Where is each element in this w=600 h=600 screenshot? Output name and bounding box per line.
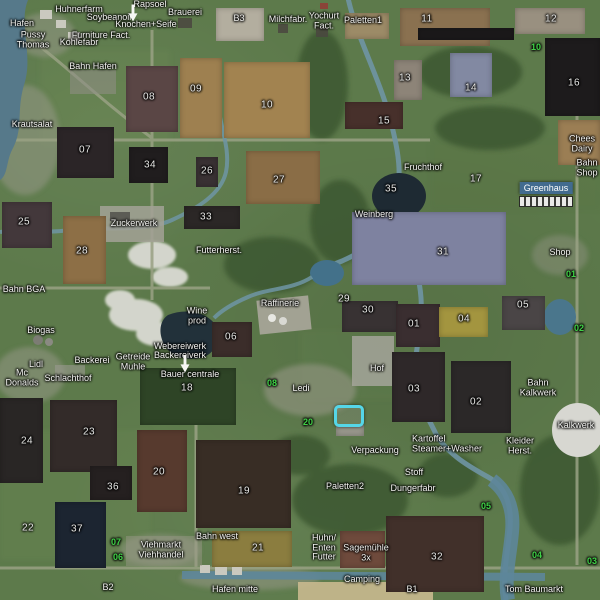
player-arrow-icon bbox=[129, 5, 138, 22]
field-number-24: 24 bbox=[21, 437, 33, 448]
place-label-shop: Shop bbox=[549, 248, 570, 258]
owned-field-number-02: 02 bbox=[574, 324, 584, 334]
field-number-34: 34 bbox=[144, 161, 156, 172]
place-label-kohlefabr: Kohlefabr bbox=[60, 38, 99, 48]
owned-field-number-01: 01 bbox=[566, 270, 576, 280]
field-number-33: 33 bbox=[200, 213, 212, 224]
field-number-20: 20 bbox=[153, 468, 165, 479]
field-number-31: 31 bbox=[437, 248, 449, 259]
place-label-furniture-fact: Furniture Fact. bbox=[72, 31, 131, 41]
place-label-raffinerie: Raffinerie bbox=[261, 299, 299, 309]
field-number-06: 06 bbox=[225, 333, 237, 344]
owned-field-number-04: 04 bbox=[532, 551, 542, 561]
place-label-tom-baumarkt: Tom Baumarkt bbox=[505, 585, 563, 595]
owned-field-number-05: 05 bbox=[481, 502, 491, 512]
place-label-zuckerwerk: Zuckerwerk bbox=[111, 219, 158, 229]
place-label-hof: Hof bbox=[370, 364, 384, 374]
place-label-hafen: Hafen bbox=[10, 19, 34, 29]
field-number-09: 09 bbox=[190, 85, 202, 96]
place-label-soybeanoil: Soybeanoil bbox=[87, 13, 132, 23]
place-label-mc-donalds: Mc Donalds bbox=[5, 368, 38, 387]
place-label-fruchthof: Fruchthof bbox=[404, 163, 442, 173]
place-label-bahn-shop: Bahn Shop bbox=[576, 158, 597, 177]
field-number-15: 15 bbox=[378, 117, 390, 128]
place-label-kleider-herst: Kleider Herst. bbox=[506, 436, 534, 455]
greenhaus-station-label[interactable]: Greenhaus bbox=[520, 182, 573, 194]
place-label-knochen-seife: Knochen+Seife bbox=[115, 20, 176, 30]
field-number-01: 01 bbox=[408, 320, 420, 331]
player-arrow-icon bbox=[181, 356, 190, 373]
place-label-biogas: Biogas bbox=[27, 326, 55, 336]
owned-field-number-03: 03 bbox=[587, 557, 597, 567]
field-number-12: 12 bbox=[545, 15, 557, 26]
place-label-yochurt-fact: Yochurt Fact. bbox=[309, 11, 339, 30]
place-label-wine-prod: Wine prod bbox=[187, 306, 208, 325]
field-number-16: 16 bbox=[568, 79, 580, 90]
selection-target-icon bbox=[334, 405, 364, 427]
owned-field-number-07: 07 bbox=[111, 538, 121, 548]
field-number-18: 18 bbox=[181, 384, 193, 395]
field-number-37: 37 bbox=[71, 525, 83, 536]
field-number-05: 05 bbox=[517, 301, 529, 312]
owned-field-number-08: 08 bbox=[267, 379, 277, 389]
place-label-milchfabr: Milchfabr. bbox=[269, 15, 308, 25]
place-label-hafen-mitte: Hafen mitte bbox=[212, 585, 258, 595]
place-label-b2: B2 bbox=[102, 583, 113, 593]
place-label-weinberg: Weinberg bbox=[355, 210, 393, 220]
owned-field-number-10: 10 bbox=[531, 43, 541, 53]
place-label-bahn-bga: Bahn BGA bbox=[3, 285, 46, 295]
place-label-paletten1: Paletten1 bbox=[344, 16, 382, 26]
place-label-backereiverk: Backereiverk bbox=[154, 351, 206, 361]
place-label-bahn-west: Bahn west bbox=[196, 532, 238, 542]
place-label-viehmarkt-viehhandel: Viehmarkt Viehhandel bbox=[139, 540, 184, 559]
place-label-kalkwerk: Kalkwerk bbox=[558, 421, 595, 431]
place-label-kartoffel-steamer-washer: Kartoffel Steamer+Washer bbox=[412, 434, 482, 453]
field-number-23: 23 bbox=[83, 428, 95, 439]
field-number-10: 10 bbox=[261, 101, 273, 112]
field-number-21: 21 bbox=[252, 544, 264, 555]
place-label-lidl: Lidl bbox=[29, 360, 43, 370]
field-number-27: 27 bbox=[273, 176, 285, 187]
field-number-22: 22 bbox=[22, 524, 34, 535]
place-label-bahn-hafen: Bahn Hafen bbox=[69, 62, 117, 72]
field-number-08: 08 bbox=[143, 93, 155, 104]
place-label-huhnerfarm: Huhnerfarm bbox=[55, 5, 103, 15]
field-number-32: 32 bbox=[431, 553, 443, 564]
field-number-13: 13 bbox=[399, 74, 411, 85]
place-label-chees-dairy: Chees Dairy bbox=[569, 134, 595, 153]
place-label-bahn-kalkwerk: Bahn Kalkwerk bbox=[520, 378, 557, 397]
place-label-schlachthof: Schlachthof bbox=[44, 374, 91, 384]
place-label-futterherst: Futterherst. bbox=[196, 246, 242, 256]
field-number-26: 26 bbox=[201, 167, 213, 178]
place-label-ledi: Ledi bbox=[292, 384, 309, 394]
field-number-02: 02 bbox=[470, 398, 482, 409]
place-label-backerei: Backerei bbox=[74, 356, 109, 366]
field-number-29: 29 bbox=[338, 295, 350, 306]
place-label-pussy-thomas: Pussy Thomas bbox=[17, 30, 50, 49]
field-number-28: 28 bbox=[76, 247, 88, 258]
place-label-b1: B1 bbox=[406, 585, 417, 595]
owned-field-number-20: 20 bbox=[303, 418, 313, 428]
field-number-17: 17 bbox=[470, 175, 482, 186]
field-number-11: 11 bbox=[421, 15, 432, 26]
map-annotations: Greenhaus HuhnerfarmRapsoelBrauereiSoybe… bbox=[0, 0, 600, 600]
field-number-14: 14 bbox=[465, 84, 477, 95]
place-label-dungerfabr: Dungerfabr bbox=[390, 484, 435, 494]
owned-field-number-06: 06 bbox=[113, 553, 123, 563]
map-canvas[interactable]: Greenhaus HuhnerfarmRapsoelBrauereiSoybe… bbox=[0, 0, 600, 600]
field-number-36: 36 bbox=[107, 483, 119, 494]
place-label-stoff: Stoff bbox=[405, 468, 423, 478]
field-number-35: 35 bbox=[385, 185, 397, 196]
place-label-b3: B3 bbox=[233, 14, 244, 24]
place-label-verpackung: Verpackung bbox=[351, 446, 399, 456]
field-number-30: 30 bbox=[362, 306, 374, 317]
place-label-brauerei: Brauerei bbox=[168, 8, 202, 18]
field-number-07: 07 bbox=[79, 146, 91, 157]
place-label-webereiwerk: Webereiwerk bbox=[154, 342, 206, 352]
place-label-sagem-hle-3x: Sagemühle 3x bbox=[343, 543, 389, 562]
field-number-19: 19 bbox=[238, 487, 250, 498]
place-label-huhn-enten-futter: Huhn/ Enten Futter bbox=[312, 533, 336, 562]
field-number-04: 04 bbox=[458, 315, 470, 326]
field-number-03: 03 bbox=[408, 385, 420, 396]
place-label-paletten2: Paletten2 bbox=[326, 482, 364, 492]
place-label-bauer-centrale: Bauer centrale bbox=[161, 370, 220, 380]
place-label-getreide-muhle: Getreide Muhle bbox=[116, 352, 151, 371]
field-number-25: 25 bbox=[18, 218, 30, 229]
place-label-krautsalat: Krautsalat bbox=[12, 120, 53, 130]
greenhaus-icon-strip bbox=[519, 196, 573, 207]
place-label-camping: Camping bbox=[344, 575, 380, 585]
place-label-rapsoel: Rapsoel bbox=[133, 0, 166, 10]
